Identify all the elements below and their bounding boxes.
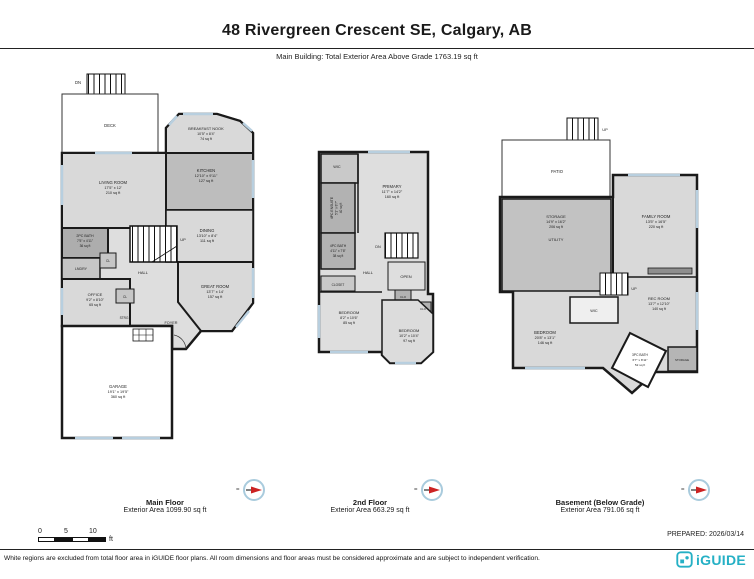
floorplans-canvas: DN DECK (0, 60, 754, 480)
scale-bar: 0 5 10 ft (38, 528, 113, 543)
basement-plan: UP PATIO STORAGE 14'9" x 16'2" 206 sq ft… (500, 118, 697, 393)
garage-area: 360 sq ft (111, 395, 127, 399)
family-dims: 13'5" x 16'5" (646, 220, 667, 224)
page-title: 48 Rivergreen Crescent SE, Calgary, AB (0, 22, 754, 40)
main-floor-caption: Main Floor Exterior Area 1099.90 sq ft (80, 498, 250, 514)
iguide-logo-icon (676, 551, 693, 568)
second-floor-area: Exterior Area 663.29 sq ft (285, 507, 455, 514)
compass-equals: = (236, 487, 240, 493)
bath3-label: 3PC BATH (632, 353, 648, 357)
hall-label: HALL (138, 270, 149, 275)
living-area: 210 sq ft (106, 191, 122, 195)
cl-b-label: CL (123, 295, 127, 299)
rec-area: 140 sq ft (652, 307, 666, 311)
open-label: OPEN (400, 274, 411, 279)
iguide-logo: iGUIDE (676, 551, 746, 568)
basement-name: Basement (Below Grade) (515, 498, 685, 507)
bed-b-area: 97 sq ft (403, 339, 415, 343)
rec-dims: 13'7" x 12'10" (648, 302, 670, 306)
kitchen-dims: 12'10" x 9'11" (195, 174, 218, 178)
basement-mid-stairs (600, 273, 628, 295)
scale-tick-10: 10 (89, 528, 97, 535)
great-label: GREAT ROOM (201, 284, 230, 289)
closet-2nd-label: CLOSET (332, 283, 345, 287)
breakfast-dims: 10'5" x 8'4" (197, 132, 215, 136)
ensuite-area: 40 sq ft (339, 203, 343, 214)
great-area: 157 sq ft (208, 295, 224, 299)
storage-label: STORAGE (546, 214, 566, 219)
main-floor-plan: DN DECK (62, 74, 253, 438)
garage-dims: 19'1" x 19'5" (108, 390, 129, 394)
bath4-area: 38 sq ft (333, 254, 344, 258)
basement-area: Exterior Area 791.06 sq ft (515, 507, 685, 514)
garage-window-symbol (133, 329, 153, 341)
cl-a-label: CL (106, 259, 110, 263)
living-dims: 17'5" x 12' (104, 186, 122, 190)
second-floor-plan: WIC 4PC ENSUITE 5'1" x 8'7" 40 sq ft PRI… (319, 152, 433, 363)
primary-dims: 11'7" x 14'2" (382, 190, 403, 194)
basement-caption: Basement (Below Grade) Exterior Area 791… (515, 498, 685, 514)
kitchen-area: 127 sq ft (199, 179, 215, 183)
main-floor-area: Exterior Area 1099.90 sq ft (80, 507, 250, 514)
bath4-label: 4PC BATH (330, 244, 347, 248)
family-window-bar (648, 268, 692, 274)
deck-label: DECK (104, 123, 116, 128)
rec-label: REC ROOM (648, 296, 670, 301)
office-label: OFFICE (88, 292, 103, 297)
bed-a-area: 85 sq ft (343, 321, 355, 325)
primary-area: 160 sq ft (385, 195, 401, 199)
ensuite-dims: 5'1" x 8'7" (335, 201, 339, 215)
storage-dims: 14'9" x 16'2" (546, 220, 566, 224)
hall-2nd-label: HALL (363, 270, 374, 275)
main-floor-name: Main Floor (80, 498, 250, 507)
room-storage-utility (502, 199, 611, 291)
clo-a-label: CLO (400, 295, 407, 299)
office-area: 65 sq ft (89, 303, 101, 307)
garage-label: GARAGE (109, 384, 127, 389)
ensuite-label: 4PC ENSUITE (330, 196, 334, 219)
bed-a-dims: 8'2" x 10'6" (340, 316, 358, 320)
room-garage (62, 326, 172, 438)
basement-up-top-label: UP (602, 127, 608, 132)
bath2-label: 2PC BATH (76, 234, 94, 238)
bath2-dims: 7'5" x 4'11" (77, 239, 94, 243)
clo-b-label: CLO (420, 307, 427, 311)
compass-equals: = (414, 487, 418, 493)
family-label: FAMILY ROOM (642, 214, 671, 219)
kitchen-label: KITCHEN (197, 168, 215, 173)
bed-b-dims: 10'2" x 10'4" (399, 334, 419, 338)
scale-unit: ft (109, 536, 113, 543)
bath3-dims: 6'7" x 8'11" (632, 358, 647, 362)
scale-tick-0: 0 (38, 528, 42, 535)
dining-area: 111 sq ft (200, 239, 215, 243)
iguide-logo-text: iGUIDE (696, 552, 746, 568)
prepared-date: PREPARED: 2026/03/14 (667, 531, 744, 538)
storage-small-label: STORAGE (675, 358, 689, 362)
compass-icon (687, 478, 711, 502)
bed-a-label: BEDROOM (339, 310, 360, 315)
bath4-dims: 4'11" x 7'8" (330, 249, 345, 253)
lndry-label: LNDRY (75, 267, 88, 271)
wic-2nd-label: WIC (333, 165, 341, 169)
great-dims: 13'7" x 14' (206, 290, 224, 294)
scale-tick-5: 5 (64, 528, 68, 535)
compass-equals: = (681, 487, 685, 493)
patio-label: PATIO (551, 169, 564, 174)
scale-segment (89, 537, 106, 542)
dining-label: DINING (200, 228, 215, 233)
primary-label: PRIMARY (382, 184, 401, 189)
second-dn-label: DN (375, 245, 381, 249)
second-dn-stairs (385, 233, 418, 258)
basement-top-stairs (567, 118, 598, 140)
wic-basement-label: WIC (590, 309, 598, 313)
footer-divider (0, 549, 754, 550)
bedroom-bsmt-area: 146 sq ft (538, 341, 554, 345)
foyer-label: FOYER (164, 321, 177, 325)
breakfast-label: BREAKFAST NOOK (188, 126, 224, 131)
bed-b-label: BEDROOM (399, 328, 420, 333)
main-up-label: UP (180, 237, 186, 242)
main-dn-label: DN (75, 80, 81, 85)
bath2-area: 36 sq ft (80, 244, 91, 248)
bath3-area: 52 sq ft (635, 363, 645, 367)
office-dims: 9'2" x 8'10" (86, 298, 104, 302)
main-mid-stairs (130, 226, 177, 262)
scale-segment (72, 537, 89, 542)
scale-segment (55, 537, 72, 542)
dining-dims: 13'10" x 8'4" (197, 234, 218, 238)
second-floor-caption: 2nd Floor Exterior Area 663.29 sq ft (285, 498, 455, 514)
living-label: LIVING ROOM (99, 180, 127, 185)
bedroom-bsmt-label: BEDROOM (534, 330, 556, 335)
scale-segment (38, 537, 55, 542)
deck-stairs (87, 74, 125, 94)
second-floor-name: 2nd Floor (285, 498, 455, 507)
strg-label: STRG (120, 316, 129, 320)
bedroom-bsmt-dims: 20'8" x 13'1" (535, 336, 556, 340)
breakfast-area: 74 sq ft (200, 137, 212, 141)
title-divider (0, 48, 754, 49)
compass-basement: = (681, 478, 711, 502)
storage-area: 206 sq ft (549, 225, 563, 229)
family-area: 220 sq ft (649, 225, 665, 229)
basement-up-mid-label: UP (631, 287, 637, 291)
disclaimer-text: White regions are excluded from total fl… (4, 555, 604, 562)
utility-label: UTILITY (549, 237, 564, 242)
